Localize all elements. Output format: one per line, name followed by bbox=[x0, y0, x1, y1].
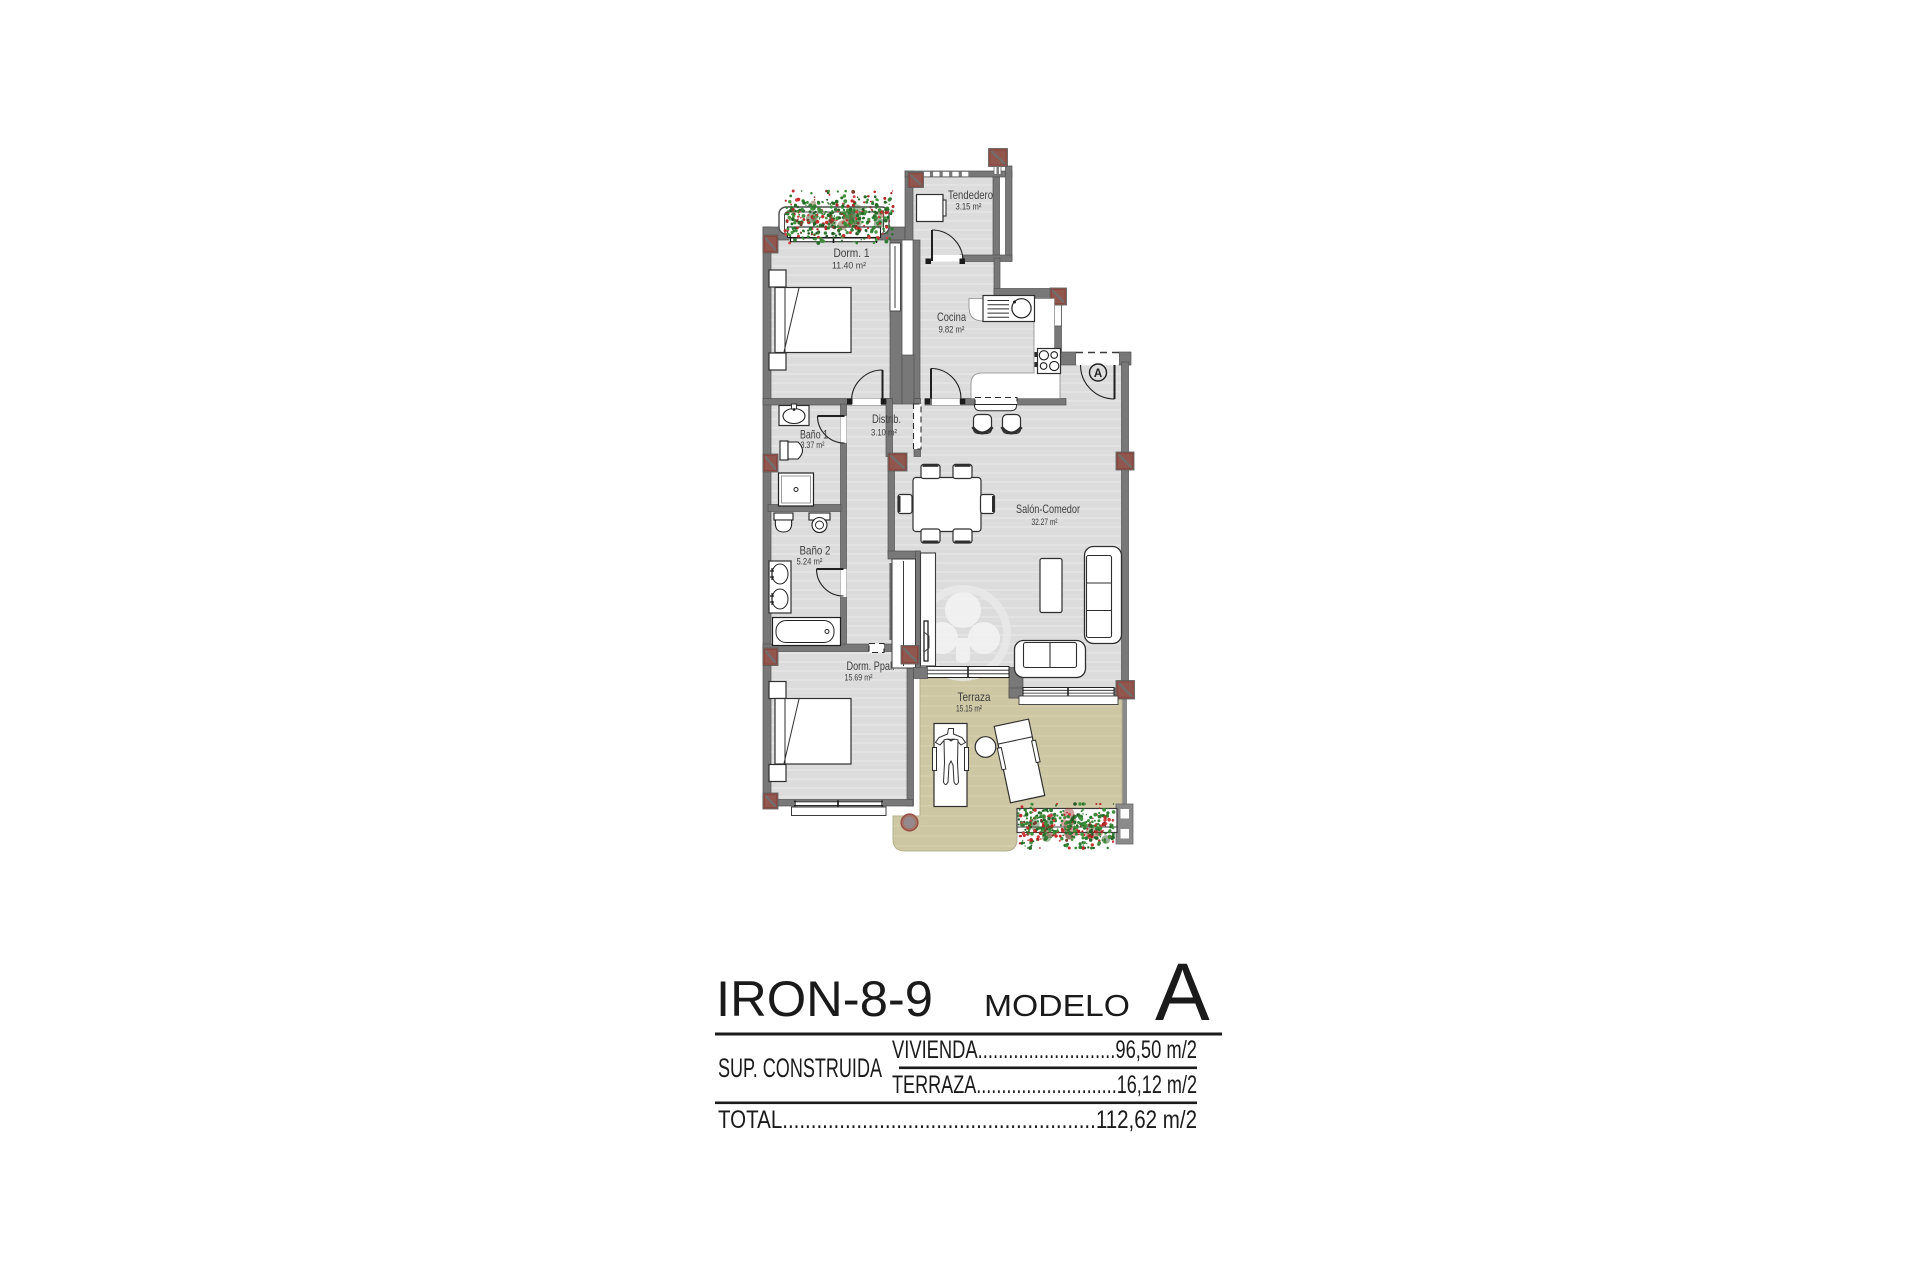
svg-text:Dorm. 1: Dorm. 1 bbox=[834, 246, 870, 260]
svg-text:VIVIENDA......................: VIVIENDA...........................96,50… bbox=[892, 1036, 1197, 1064]
svg-text:9.82 m²: 9.82 m² bbox=[939, 325, 965, 336]
svg-text:A: A bbox=[1155, 947, 1210, 1038]
svg-text:A: A bbox=[1094, 368, 1102, 380]
svg-text:TERRAZA.......................: TERRAZA............................16,12… bbox=[892, 1071, 1197, 1099]
svg-text:3.15 m²: 3.15 m² bbox=[956, 202, 982, 213]
svg-text:Baño 2: Baño 2 bbox=[800, 544, 831, 558]
svg-text:5.24 m²: 5.24 m² bbox=[797, 557, 823, 568]
svg-text:Distrib.: Distrib. bbox=[872, 412, 901, 426]
svg-text:32.27 m²: 32.27 m² bbox=[1032, 517, 1058, 528]
svg-text:3.10 m²: 3.10 m² bbox=[871, 428, 897, 439]
svg-text:11.40 m²: 11.40 m² bbox=[832, 261, 866, 272]
svg-text:Tendedero: Tendedero bbox=[948, 188, 993, 202]
svg-text:15.15 m²: 15.15 m² bbox=[956, 704, 982, 715]
svg-text:Terraza: Terraza bbox=[958, 690, 991, 704]
svg-text:Cocina: Cocina bbox=[937, 310, 966, 324]
svg-text:15.69 m²: 15.69 m² bbox=[845, 673, 873, 684]
svg-text:3.37 m²: 3.37 m² bbox=[801, 440, 825, 451]
svg-text:TOTAL.........................: TOTAL...................................… bbox=[718, 1106, 1197, 1134]
svg-text:SUP. CONSTRUIDA: SUP. CONSTRUIDA bbox=[718, 1053, 882, 1083]
svg-text:IRON-8-9: IRON-8-9 bbox=[716, 971, 933, 1027]
svg-text:MODELO: MODELO bbox=[984, 988, 1130, 1023]
svg-text:Salón-Comedor: Salón-Comedor bbox=[1016, 502, 1080, 516]
svg-text:Dorm. Ppal.: Dorm. Ppal. bbox=[847, 659, 895, 673]
